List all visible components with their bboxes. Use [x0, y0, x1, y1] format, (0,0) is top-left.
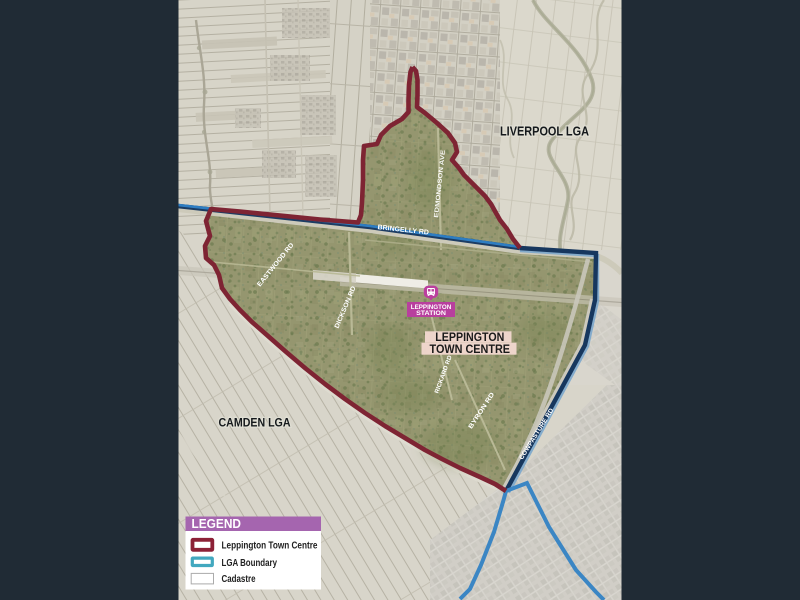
svg-text:LEGEND: LEGEND: [192, 517, 242, 531]
svg-text:CAMDEN LGA: CAMDEN LGA: [219, 416, 291, 430]
svg-text:STATION: STATION: [416, 310, 446, 317]
svg-text:Cadastre: Cadastre: [222, 574, 256, 585]
svg-text:TOWN CENTRE: TOWN CENTRE: [430, 342, 511, 356]
svg-text:LIVERPOOL LGA: LIVERPOOL LGA: [500, 125, 589, 139]
svg-text:LGA Boundary: LGA Boundary: [222, 558, 278, 569]
svg-text:Leppington Town Centre: Leppington Town Centre: [222, 541, 318, 552]
